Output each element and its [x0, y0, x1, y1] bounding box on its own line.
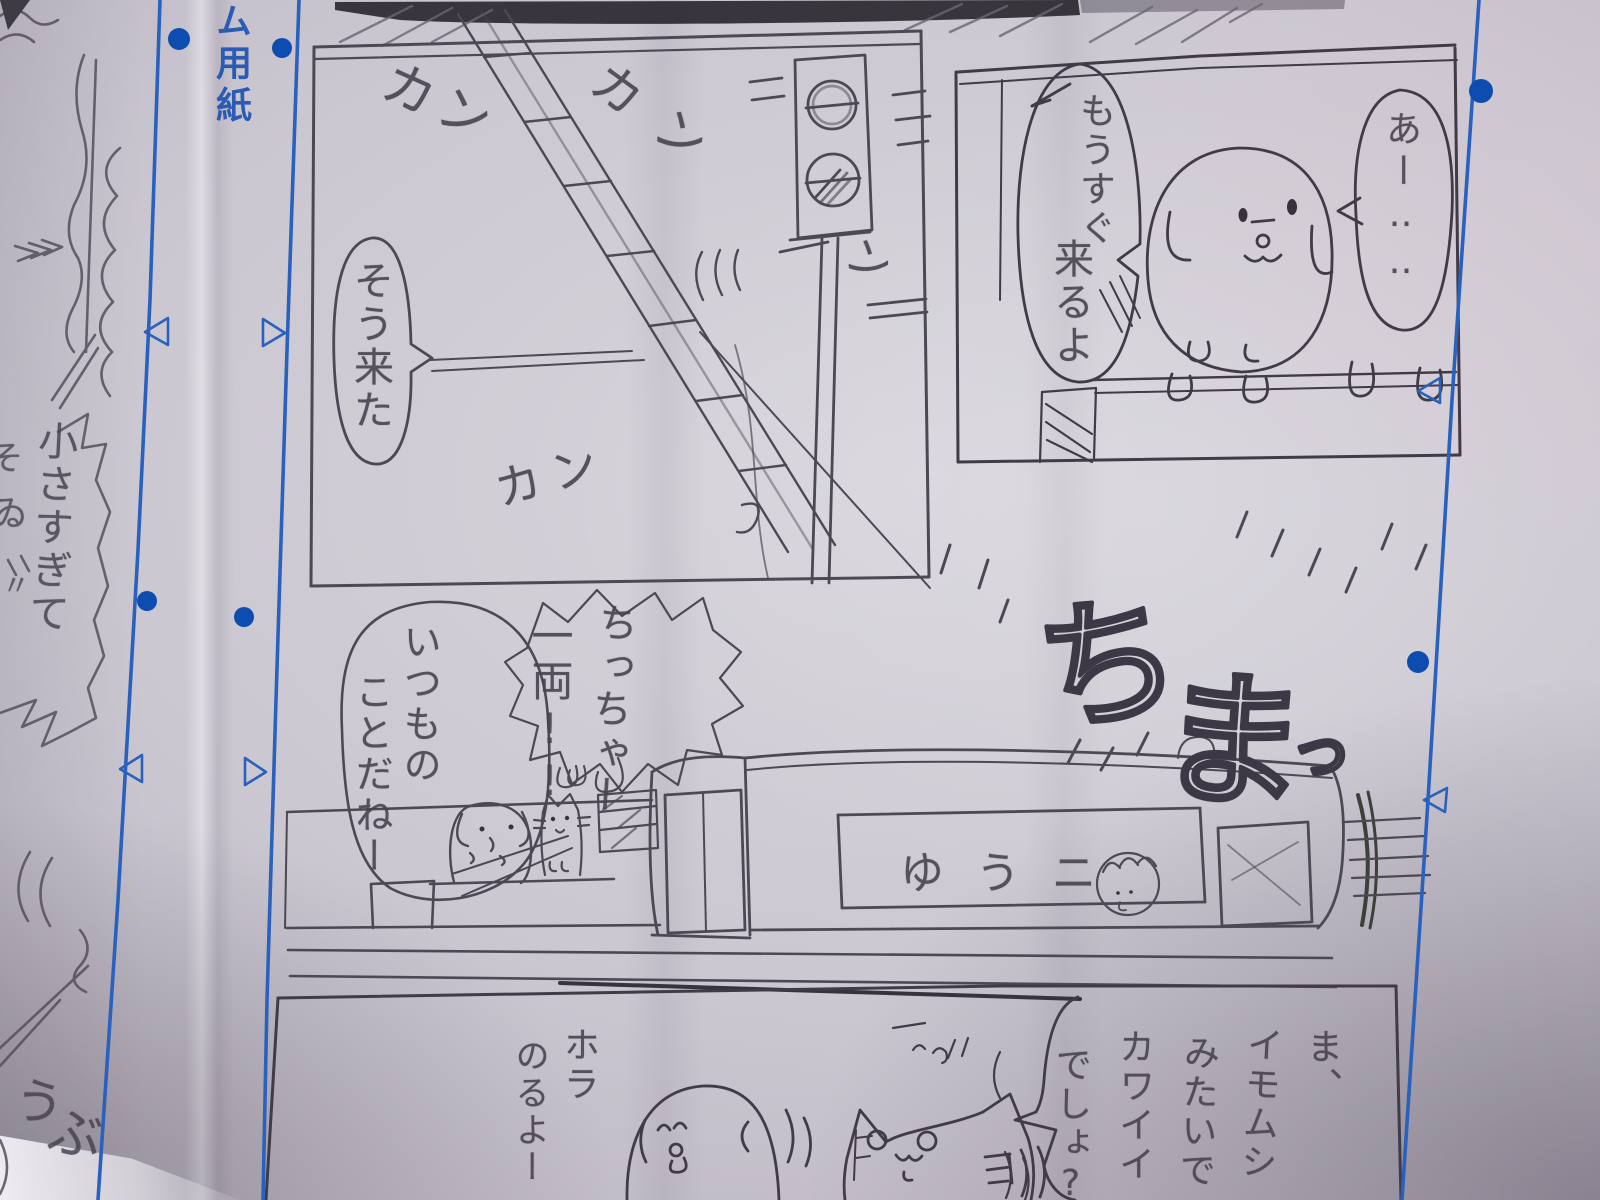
speech-imomushi-line5: でしょ? — [1052, 1046, 1088, 1200]
speech-itsumono-line1: いつもの — [400, 622, 438, 786]
railroad-signal-drawing — [750, 55, 930, 583]
margin-bubble-text: 小さすぎて — [24, 419, 75, 636]
blue-register-dots — [137, 28, 1493, 673]
speech-mousugu-line2: 来るよ — [1050, 238, 1090, 367]
dome-dog-drawing — [627, 1086, 779, 1200]
speech-ah: あー‥‥ — [1382, 110, 1418, 288]
speech-imomushi-line1: ま、 — [1303, 1028, 1339, 1106]
fence-post-hatch — [1040, 388, 1096, 462]
manuscript-blue-print — [98, 0, 1493, 1200]
speech-noruyo: のるよー — [512, 1038, 546, 1186]
dog-character-drawing — [1147, 148, 1332, 402]
panel-boarding-border — [266, 986, 1401, 1200]
panel-dog-ground-line — [1092, 372, 1456, 380]
margin-fragment-ru: ゐ — [0, 494, 24, 533]
shout-ichiryou: 一両!! — [528, 614, 570, 808]
train-side-text: ゆうニ — [900, 852, 1128, 896]
platform-lines — [288, 950, 1336, 999]
paper-type-label: ム用紙 — [212, 2, 248, 128]
sfx-ma-text: ま — [1155, 652, 1313, 832]
pencil-artwork: ち ま っ — [0, 0, 1600, 1200]
speech-hora: ホラ — [560, 1026, 596, 1104]
speech-itsumono-line2: ことだねー — [352, 672, 390, 877]
speech-imomushi-line4: カワイイ — [1115, 1028, 1151, 1184]
panel-boarding-drawing — [266, 986, 1401, 1200]
station-wall-lines — [285, 800, 660, 928]
margin-sfx-bu: ぶ — [45, 1105, 106, 1166]
manga-sketch-photo: ち ま っ ム用紙 小さすぎて — [0, 0, 1600, 1200]
sfx-chima-outline-text: ち ま っ — [1028, 574, 1352, 832]
speech-sou-kita: そう来た — [350, 260, 390, 432]
cat-character-drawing — [844, 1023, 1044, 1200]
speech-imomushi-line3: みたいで — [1175, 1033, 1216, 1190]
sfx-small-tsu-text: っ — [1290, 714, 1352, 787]
speech-imomushi-line2: イモムシ — [1236, 1025, 1280, 1183]
second-character-feet — [1350, 362, 1442, 400]
margin-fragment-dakuten: 〃 — [2, 572, 30, 600]
speech-mousugu-line1: もうすぐ — [1076, 92, 1112, 248]
margin-fragment-so: そ — [0, 440, 20, 477]
blue-margin-line-inner — [263, 0, 299, 1200]
